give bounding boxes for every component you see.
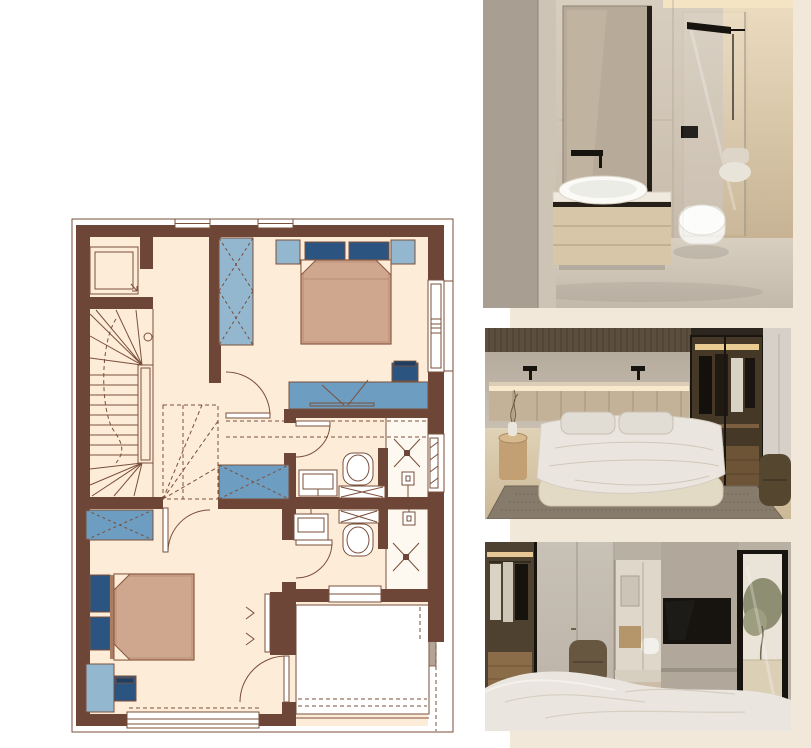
bedroom-render-svg [485,328,791,519]
door-handle [571,628,576,630]
ensuite-opening [615,560,661,682]
pillow [619,412,673,434]
shower-glass [683,12,747,236]
foreground-wall [483,0,538,308]
vessel-sink [559,176,647,204]
ensuite-tub [641,638,659,654]
bed [537,412,725,506]
page [0,0,811,748]
pillow [561,412,615,434]
bathroom-photo [483,0,793,308]
vase [508,422,517,436]
ensuite-vanity [619,626,641,648]
bathroom1-window-radiator [428,434,444,492]
washbasin-icon [299,470,337,496]
nightstand-left [276,240,300,264]
floor-plan-svg [70,215,460,737]
hall-furniture [219,465,289,499]
terrace-top-window [329,586,381,602]
bedroom1-window [428,280,453,372]
bathroom-render-svg [483,0,793,308]
bedroom-photo [485,328,791,519]
low-wardrobe [86,510,153,540]
nightstand-right [391,240,415,264]
armchair [759,454,791,506]
ensuite-mirror [621,576,639,606]
toilet-icon [339,510,379,556]
bedroom-tv-photo [485,542,791,731]
ceiling-light [663,0,793,8]
tall-wardrobe [219,238,253,345]
double-bed [90,574,194,660]
reflected-fixtures [719,148,751,182]
bedroom-tv-render-svg [485,542,791,731]
floor-plan [70,215,460,737]
